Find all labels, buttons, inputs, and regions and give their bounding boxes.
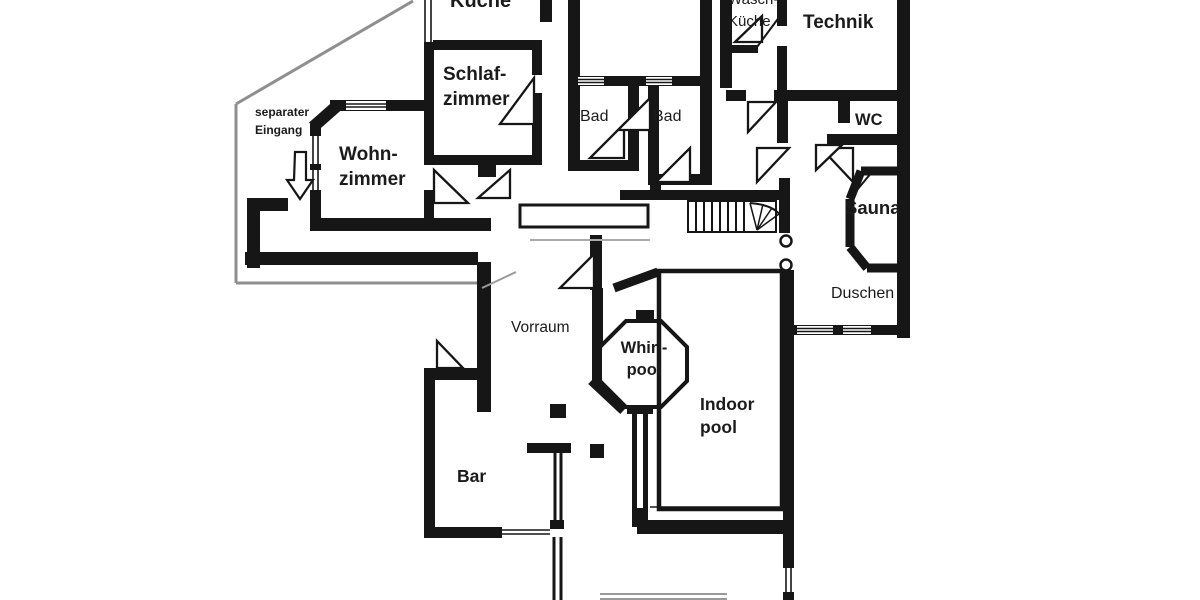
annotation-separate-entrance: separater Eingang: [255, 103, 309, 139]
room-label-vorraum: Vorraum: [511, 318, 570, 338]
room-label-indoor-pool: Indoor pool: [700, 393, 754, 439]
built-in-cupboard: [520, 205, 648, 227]
floor-plan: { "document": { "type": "scanned archite…: [0, 0, 1200, 600]
room-label-wasch-kueche: Wasch- Küche: [728, 0, 778, 33]
round-columns: [781, 236, 792, 271]
technik-door-gap: [746, 90, 774, 101]
room-label-duschen: Duschen: [831, 283, 894, 304]
staircase: [688, 201, 784, 232]
room-label-wohnzimmer: Wohn- zimmer: [339, 142, 406, 192]
room-label-bar: Bar: [457, 465, 486, 488]
room-label-whirlpool: Whirl- pool: [600, 338, 688, 382]
walls: [245, 0, 910, 600]
floor-plan-drawing: [0, 0, 1200, 600]
room-label-bad-2: Bad: [653, 106, 681, 127]
room-label-schlafzimmer: Schlaf- zimmer: [443, 62, 510, 112]
room-label-sauna: Sauna: [845, 196, 901, 220]
room-label-kueche: Küche: [450, 0, 511, 14]
entrance-arrow-icon: [287, 152, 313, 199]
room-label-technik: Technik: [803, 10, 873, 35]
cutoff-marks: [600, 594, 727, 599]
room-label-bad-1: Bad: [580, 106, 608, 127]
room-label-wc: WC: [855, 110, 883, 132]
